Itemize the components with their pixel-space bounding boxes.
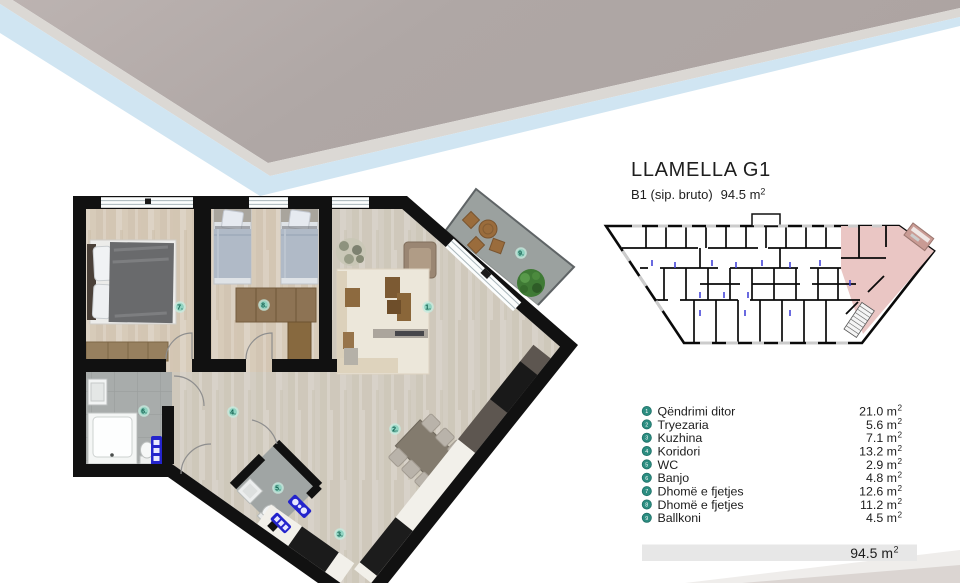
svg-text:4.: 4. — [230, 410, 236, 417]
svg-text:13.2 m: 13.2 m — [859, 444, 897, 458]
svg-text:4.8 m: 4.8 m — [866, 471, 897, 485]
svg-text:21.0 m: 21.0 m — [859, 404, 897, 418]
svg-text:7.1 m: 7.1 m — [866, 431, 897, 445]
svg-text:Kuzhina: Kuzhina — [658, 431, 703, 445]
svg-text:9: 9 — [645, 516, 648, 522]
svg-text:2: 2 — [898, 430, 903, 439]
svg-text:7.: 7. — [177, 305, 183, 312]
svg-text:B1 (sip. bruto)94.5 m2: B1 (sip. bruto)94.5 m2 — [631, 187, 765, 203]
svg-text:94.5 m: 94.5 m — [850, 545, 893, 561]
svg-text:2: 2 — [898, 484, 903, 493]
svg-text:7: 7 — [645, 489, 648, 495]
svg-text:2: 2 — [898, 511, 903, 520]
svg-text:2: 2 — [898, 417, 903, 426]
svg-text:8: 8 — [645, 502, 648, 508]
svg-text:WC: WC — [658, 458, 679, 472]
svg-text:9.: 9. — [518, 251, 524, 258]
svg-text:2: 2 — [898, 470, 903, 479]
svg-text:5.: 5. — [275, 486, 281, 493]
svg-text:2: 2 — [898, 497, 903, 506]
svg-text:Dhomë e fjetjes: Dhomë e fjetjes — [658, 485, 744, 499]
svg-text:Ballkoni: Ballkoni — [658, 511, 701, 525]
svg-text:6.: 6. — [141, 409, 147, 416]
svg-text:2: 2 — [898, 457, 903, 466]
svg-text:2.9 m: 2.9 m — [866, 458, 897, 472]
svg-text:Koridori: Koridori — [658, 444, 701, 458]
svg-text:LLAMELLA G1: LLAMELLA G1 — [631, 159, 771, 181]
svg-text:12.6 m: 12.6 m — [859, 485, 897, 499]
svg-text:11.2 m: 11.2 m — [860, 498, 897, 512]
svg-text:Banjo: Banjo — [658, 471, 690, 485]
svg-text:2.: 2. — [392, 427, 398, 434]
svg-text:3: 3 — [645, 436, 648, 442]
svg-text:4: 4 — [645, 449, 648, 455]
svg-text:5.6 m: 5.6 m — [866, 418, 897, 432]
svg-text:Dhomë e fjetjes: Dhomë e fjetjes — [658, 498, 744, 512]
svg-text:2: 2 — [898, 404, 903, 413]
svg-text:Qëndrimi ditor: Qëndrimi ditor — [658, 404, 736, 418]
svg-text:5: 5 — [645, 462, 648, 468]
svg-text:6: 6 — [645, 476, 648, 482]
svg-text:4.5 m: 4.5 m — [866, 511, 897, 525]
svg-text:8.: 8. — [261, 303, 267, 310]
svg-text:Tryezaria: Tryezaria — [658, 418, 709, 432]
svg-text:2: 2 — [898, 444, 903, 453]
svg-text:1: 1 — [645, 409, 648, 415]
svg-text:2: 2 — [645, 422, 648, 428]
svg-text:1.: 1. — [425, 305, 431, 312]
svg-text:2: 2 — [894, 545, 899, 555]
svg-text:3.: 3. — [337, 532, 343, 539]
